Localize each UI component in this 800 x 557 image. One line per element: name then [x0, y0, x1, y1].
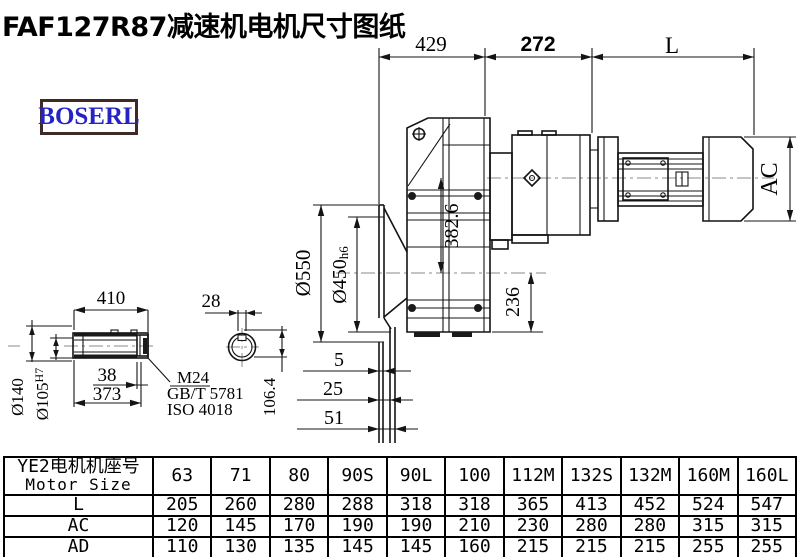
motor-outline	[598, 137, 753, 221]
table-cell: 130	[211, 537, 269, 557]
output-flange	[379, 205, 407, 443]
table-cell: 190	[328, 516, 386, 537]
table-cell: 190	[387, 516, 445, 537]
standard-iso-label: ISO 4018	[167, 400, 233, 419]
table-cell: 145	[211, 516, 269, 537]
dim-5: 5	[334, 349, 344, 371]
dim-38: 38	[98, 365, 117, 386]
column-header: 132S	[562, 457, 620, 495]
dim-dia550: Ø550	[291, 250, 315, 297]
table-cell: 145	[387, 537, 445, 557]
table-row: AC120145170190190210230280280315315	[4, 516, 796, 537]
column-header: 90S	[328, 457, 386, 495]
table-cell: 170	[270, 516, 328, 537]
table-cell: 160	[445, 537, 503, 557]
dim-272: 272	[520, 33, 555, 56]
table-cell: 280	[621, 516, 679, 537]
table-cell: 260	[211, 495, 269, 516]
column-header: 71	[211, 457, 269, 495]
dim-106-4: 106.4	[260, 377, 279, 416]
dim-51: 51	[324, 407, 344, 429]
motor-size-header: YE2电机机座号 Motor Size	[4, 457, 153, 495]
table-cell: 318	[445, 495, 503, 516]
dim-28: 28	[202, 291, 221, 312]
table-cell: 288	[328, 495, 386, 516]
table-cell: 210	[445, 516, 503, 537]
dim-dia450: Ø450h6	[329, 246, 351, 304]
dimension-lines	[32, 57, 790, 429]
table-cell: 205	[153, 495, 211, 516]
column-header: 160M	[679, 457, 737, 495]
column-header: 160L	[738, 457, 796, 495]
page: FAF127R87减速机电机尺寸图纸 BOSERL	[0, 0, 800, 557]
dim-25: 25	[323, 378, 343, 400]
row-label: AD	[4, 537, 153, 557]
table-row: L205260280288318318365413452524547	[4, 495, 796, 516]
table-cell: 280	[270, 495, 328, 516]
dim-dia140: Ø140	[8, 378, 27, 416]
table-cell: 318	[387, 495, 445, 516]
table-cell: 110	[153, 537, 211, 557]
table-row: AD110130135145145160215215215255255	[4, 537, 796, 557]
technical-drawing: 429 272 L AC Ø550 Ø450h6 382.6 236 5 25 …	[0, 0, 800, 457]
column-header: 80	[270, 457, 328, 495]
row-label: AC	[4, 516, 153, 537]
table-cell: 215	[504, 537, 562, 557]
column-header: 112M	[504, 457, 562, 495]
table-cell: 145	[328, 537, 386, 557]
table-cell: 365	[504, 495, 562, 516]
input-adapter	[490, 131, 598, 249]
table-cell: 230	[504, 516, 562, 537]
table-cell: 315	[679, 516, 737, 537]
extension-lines	[26, 48, 796, 407]
dim-dia105: Ø105H7	[32, 368, 52, 420]
dim-L: L	[665, 33, 679, 58]
table-cell: 215	[562, 537, 620, 557]
table-cell: 120	[153, 516, 211, 537]
table-cell: 452	[621, 495, 679, 516]
dim-AC: AC	[757, 162, 783, 195]
dim-373: 373	[93, 384, 122, 405]
table-cell: 524	[679, 495, 737, 516]
table-cell: 547	[738, 495, 796, 516]
motor-size-header-en: Motor Size	[5, 477, 152, 494]
column-header: 63	[153, 457, 211, 495]
dimension-arrows	[29, 54, 793, 432]
dim-236: 236	[502, 287, 524, 317]
table-cell: 255	[679, 537, 737, 557]
column-header: 100	[445, 457, 503, 495]
table-cell: 315	[738, 516, 796, 537]
row-label: L	[4, 495, 153, 516]
table-header-row: YE2电机机座号 Motor Size 63718090S90L100112M1…	[4, 457, 796, 495]
table-cell: 413	[562, 495, 620, 516]
table-cell: 135	[270, 537, 328, 557]
dim-429: 429	[415, 32, 447, 56]
column-header: 90L	[387, 457, 445, 495]
dim-410: 410	[97, 288, 126, 309]
table-cell: 280	[562, 516, 620, 537]
column-header: 132M	[621, 457, 679, 495]
spec-table: YE2电机机座号 Motor Size 63718090S90L100112M1…	[3, 456, 797, 557]
table-cell: 255	[738, 537, 796, 557]
table-cell: 215	[621, 537, 679, 557]
dim-382-6: 382.6	[441, 204, 463, 249]
